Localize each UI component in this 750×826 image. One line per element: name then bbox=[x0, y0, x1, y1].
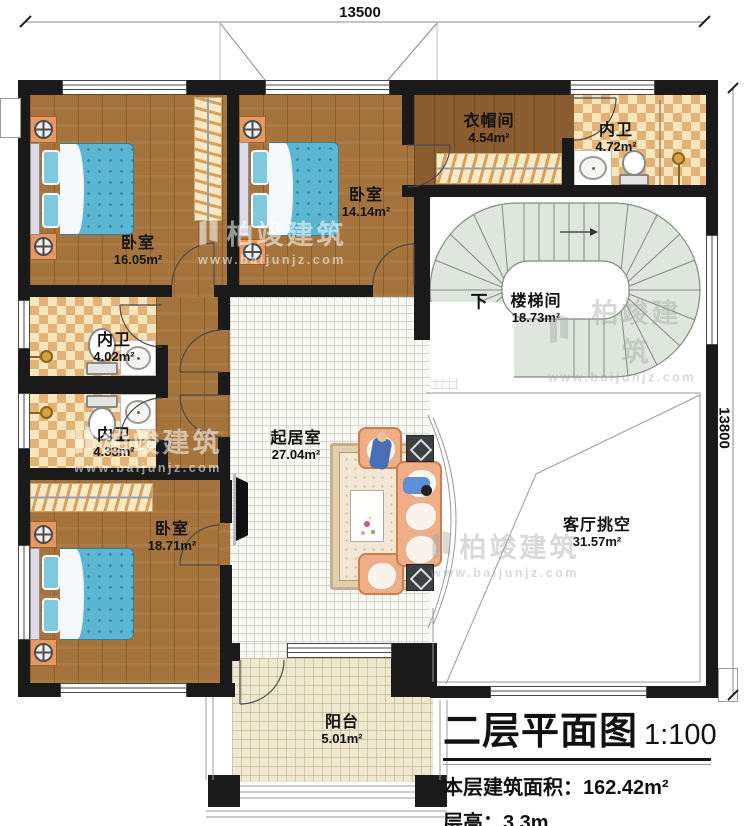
shower-icon bbox=[40, 350, 53, 363]
window bbox=[570, 80, 655, 95]
nightstand bbox=[30, 639, 57, 666]
side-table bbox=[406, 564, 434, 591]
wall-segment bbox=[218, 437, 230, 468]
window bbox=[18, 393, 30, 449]
room-name: 内卫 bbox=[93, 427, 134, 445]
side-table bbox=[406, 435, 434, 462]
coffee-table bbox=[350, 490, 384, 542]
wall-segment bbox=[220, 480, 232, 523]
bed-bedroom-3 bbox=[30, 548, 134, 640]
bed-pillow bbox=[251, 150, 269, 186]
bed-bedroom-2 bbox=[239, 142, 339, 236]
window bbox=[18, 545, 30, 640]
wall-segment bbox=[414, 185, 430, 340]
bed-pillow bbox=[42, 598, 60, 633]
floor-height-value: 3.3m bbox=[503, 812, 549, 826]
room-area: 16.05m² bbox=[114, 253, 162, 268]
wall-segment bbox=[414, 285, 430, 297]
room-name: 衣帽间 bbox=[463, 113, 514, 131]
person-head bbox=[377, 432, 387, 442]
lamp-icon bbox=[34, 120, 53, 139]
bed-headboard bbox=[239, 142, 249, 236]
room-label-bath-mid-b: 内卫 4.33m² bbox=[93, 427, 134, 459]
room-name: 卧室 bbox=[114, 235, 162, 253]
window-sill bbox=[0, 98, 21, 138]
room-name: 卧室 bbox=[148, 521, 196, 539]
wall-segment bbox=[220, 565, 232, 683]
nightstand bbox=[30, 233, 57, 260]
room-area: 14.14m² bbox=[342, 205, 390, 220]
bed-sheet bbox=[60, 144, 84, 234]
window bbox=[490, 686, 647, 698]
wall-segment bbox=[402, 185, 718, 197]
window-sill bbox=[718, 668, 738, 702]
wall-segment bbox=[706, 80, 718, 698]
room-name: 客厅挑空 bbox=[563, 517, 631, 535]
flower-decor bbox=[364, 521, 370, 527]
sink-icon bbox=[579, 156, 607, 180]
lamp-icon bbox=[34, 525, 53, 544]
balcony-pillar bbox=[208, 775, 240, 807]
wall-segment bbox=[391, 643, 437, 697]
stair-down-label: 下 bbox=[471, 288, 488, 313]
tv-cabinet bbox=[233, 473, 236, 545]
room-label-bedroom-3: 卧室 18.71m² bbox=[148, 521, 196, 553]
dimension-top: 13500 bbox=[339, 4, 381, 21]
shower-icon bbox=[672, 152, 685, 165]
plan-scale: 1:100 bbox=[644, 719, 717, 752]
room-area: 4.33m² bbox=[93, 445, 134, 460]
window bbox=[706, 235, 718, 345]
bed-bedroom-1 bbox=[30, 143, 134, 235]
dimension-right: 13800 bbox=[716, 407, 733, 449]
room-label-stairwell: 楼梯间 18.73m² bbox=[510, 293, 561, 325]
floorplan-canvas: 卧室 16.05m² 卧室 14.14m² 衣帽间 4.54m² 内卫 4.72… bbox=[0, 0, 750, 826]
room-name: 卧室 bbox=[342, 187, 390, 205]
bed-sheet bbox=[269, 143, 293, 235]
lamp-icon bbox=[243, 120, 262, 139]
window bbox=[265, 80, 390, 95]
nightstand bbox=[239, 116, 266, 143]
bed-pillow bbox=[42, 150, 60, 185]
title-underline bbox=[443, 758, 711, 765]
wall-segment bbox=[228, 643, 240, 661]
sink-icon bbox=[125, 400, 151, 424]
floor-area-value: 162.42m² bbox=[583, 777, 669, 800]
room-name: 阳台 bbox=[321, 714, 362, 732]
bed-pillow bbox=[42, 193, 60, 228]
window bbox=[60, 683, 187, 697]
wall-segment bbox=[218, 297, 230, 330]
tv-icon bbox=[236, 477, 248, 541]
bed-headboard bbox=[30, 143, 40, 235]
wall-segment bbox=[227, 95, 239, 297]
floor-area-label: 本层建筑面积： bbox=[443, 771, 583, 800]
room-name: 内卫 bbox=[595, 122, 636, 140]
nightstand bbox=[239, 239, 266, 265]
wardrobe-rack bbox=[30, 483, 153, 512]
person-head bbox=[421, 485, 432, 496]
room-name: 楼梯间 bbox=[510, 293, 561, 311]
room-area: 5.01m² bbox=[321, 732, 362, 747]
room-label-bedroom-1: 卧室 16.05m² bbox=[114, 235, 162, 267]
lamp-icon bbox=[34, 237, 53, 256]
room-label-balcony: 阳台 5.01m² bbox=[321, 714, 362, 746]
cloakroom-rack bbox=[436, 153, 562, 184]
sofa-cushion bbox=[367, 562, 397, 590]
room-area: 4.72m² bbox=[595, 140, 636, 155]
room-area: 4.02m² bbox=[93, 350, 134, 365]
floor-height-label: 层高： bbox=[443, 806, 503, 826]
room-area: 18.71m² bbox=[148, 539, 196, 554]
bed-pillow bbox=[42, 555, 60, 590]
wall-segment bbox=[30, 376, 168, 394]
wall-segment bbox=[562, 138, 574, 185]
shower-icon bbox=[40, 406, 53, 419]
balcony-window bbox=[287, 643, 392, 658]
room-area: 18.73m² bbox=[510, 311, 561, 326]
wardrobe-rack bbox=[194, 97, 222, 221]
bed-sheet bbox=[60, 549, 84, 639]
wall-segment bbox=[18, 285, 172, 297]
nightstand bbox=[30, 116, 57, 143]
room-name: 起居室 bbox=[270, 430, 321, 448]
plan-title: 二层平面图 bbox=[443, 700, 638, 755]
nightstand bbox=[30, 521, 57, 548]
room-label-void: 客厅挑空 31.57m² bbox=[563, 517, 631, 549]
room-area: 31.57m² bbox=[563, 535, 631, 550]
title-block: 二层平面图 1:100 本层建筑面积： 162.42m² 层高： 3.3m bbox=[443, 700, 721, 826]
bed-headboard bbox=[30, 548, 40, 640]
wall-segment bbox=[218, 372, 230, 395]
lamp-icon bbox=[34, 643, 53, 662]
room-label-bath-mid-a: 内卫 4.02m² bbox=[93, 332, 134, 364]
wall-segment bbox=[18, 468, 230, 480]
bed-pillow bbox=[251, 193, 269, 229]
wall-segment bbox=[214, 285, 373, 297]
lamp-icon bbox=[243, 243, 262, 261]
sofa-cushion bbox=[405, 535, 437, 564]
window bbox=[18, 300, 30, 349]
room-area: 27.04m² bbox=[270, 448, 321, 463]
room-area: 4.54m² bbox=[463, 131, 514, 146]
room-label-bath-top: 内卫 4.72m² bbox=[595, 122, 636, 154]
window bbox=[62, 80, 187, 95]
wall-segment bbox=[402, 95, 414, 145]
room-name: 内卫 bbox=[93, 332, 134, 350]
room-label-bedroom-2: 卧室 14.14m² bbox=[342, 187, 390, 219]
room-label-cloakroom: 衣帽间 4.54m² bbox=[463, 113, 514, 145]
sofa-cushion bbox=[405, 502, 437, 531]
room-label-living: 起居室 27.04m² bbox=[270, 430, 321, 462]
wall-segment bbox=[156, 440, 168, 468]
